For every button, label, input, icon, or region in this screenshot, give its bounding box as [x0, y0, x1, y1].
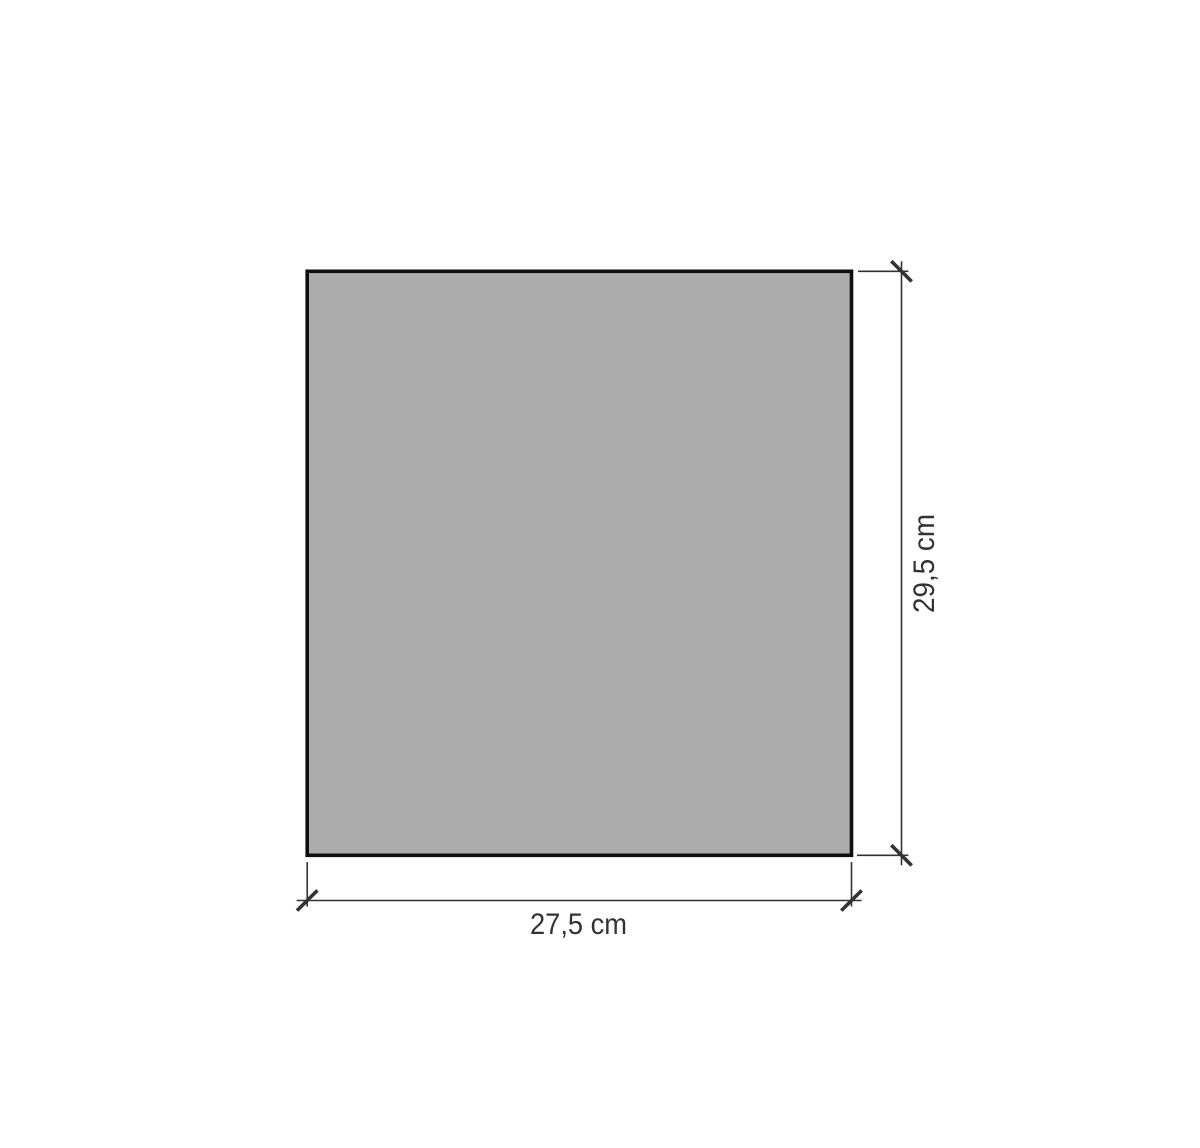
svg-text:27,5 cm: 27,5 cm — [530, 908, 627, 941]
svg-text:29,5 cm: 29,5 cm — [908, 514, 941, 613]
